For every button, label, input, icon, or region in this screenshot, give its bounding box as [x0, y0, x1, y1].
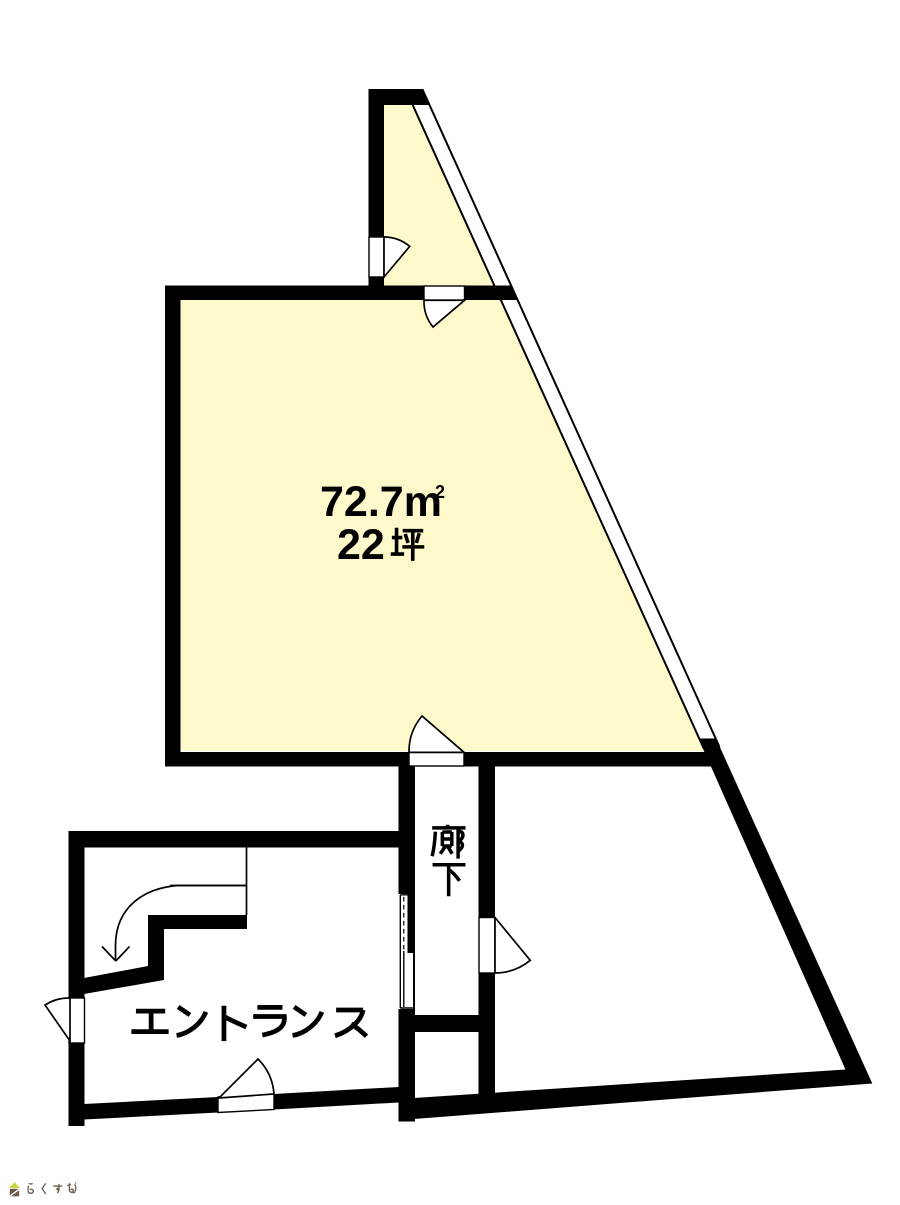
svg-text:72.7m: 72.7m	[320, 478, 442, 526]
svg-text:22: 22	[337, 521, 385, 569]
svg-text:2: 2	[435, 482, 445, 502]
